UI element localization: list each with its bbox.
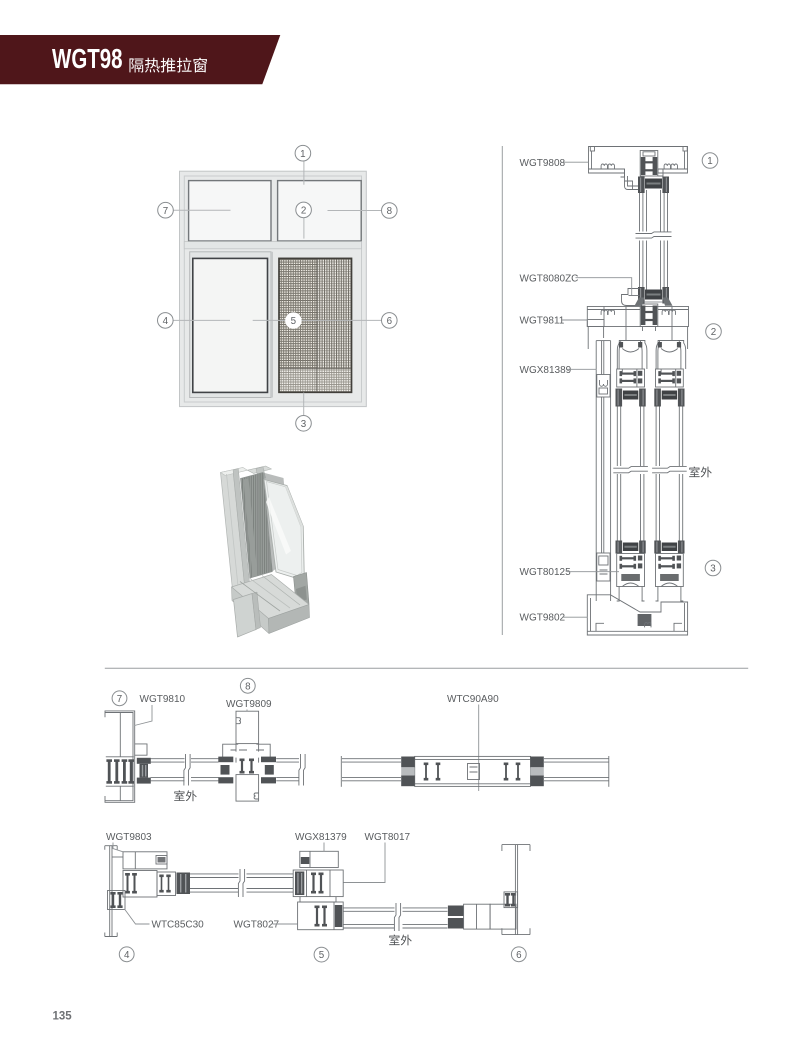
svg-text:WGX81379: WGX81379 [295,832,347,843]
svg-text:2: 2 [711,327,716,338]
svg-text:4: 4 [163,316,169,327]
svg-text:WTC85C30: WTC85C30 [152,920,205,931]
svg-text:WGT8080ZC: WGT8080ZC [520,273,579,284]
svg-text:1: 1 [707,156,712,167]
svg-text:3: 3 [301,419,307,430]
svg-text:8: 8 [245,681,251,692]
svg-text:WTC90A90: WTC90A90 [447,694,499,705]
svg-text:6: 6 [516,950,522,961]
svg-text:WGT98: WGT98 [52,43,123,74]
svg-text:135: 135 [53,1011,73,1023]
svg-text:WGT9808: WGT9808 [520,158,566,169]
svg-text:WGT8017: WGT8017 [365,832,411,843]
svg-text:4: 4 [124,950,130,961]
svg-text:WGX81389: WGX81389 [520,365,572,376]
svg-text:7: 7 [117,694,122,705]
svg-text:WGT9810: WGT9810 [140,694,186,705]
svg-text:WGT9803: WGT9803 [106,832,152,843]
svg-text:WGT80125: WGT80125 [520,567,572,578]
svg-text:8: 8 [387,206,393,217]
svg-text:WGT9809: WGT9809 [226,699,272,710]
svg-text:1: 1 [300,149,305,160]
svg-text:6: 6 [387,316,393,327]
svg-text:5: 5 [319,950,325,961]
svg-text:7: 7 [163,206,168,217]
svg-text:WGT9802: WGT9802 [520,613,566,624]
svg-text:WGT8027: WGT8027 [234,920,280,931]
svg-text:3: 3 [710,564,716,575]
svg-text:5: 5 [291,316,297,327]
svg-text:WGT9811: WGT9811 [520,316,565,327]
svg-text:2: 2 [301,206,306,217]
